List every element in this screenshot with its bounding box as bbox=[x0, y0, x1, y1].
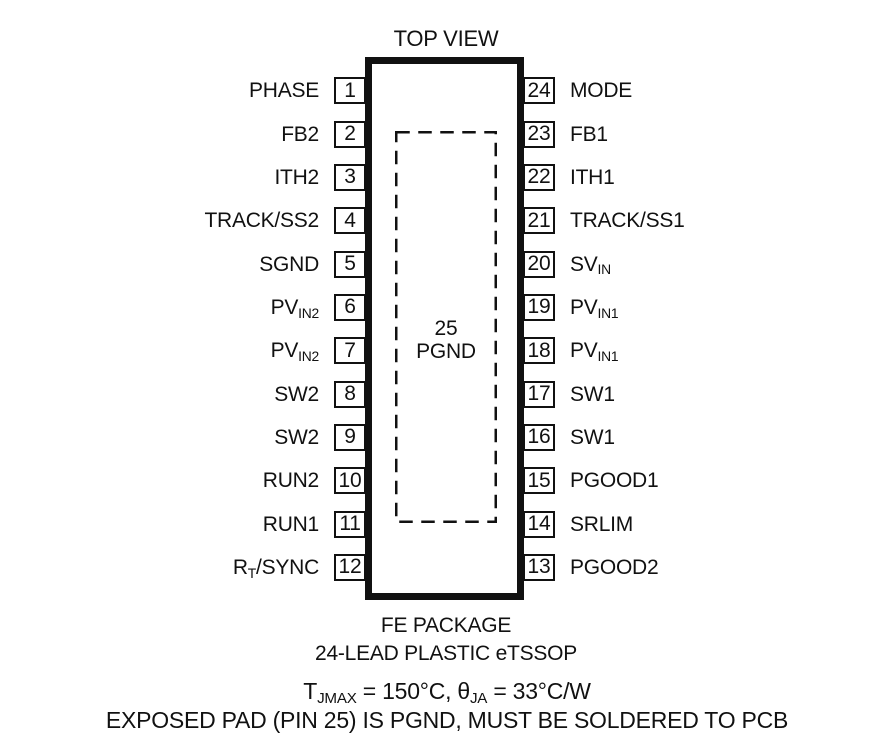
pin-label-24: MODE bbox=[570, 77, 632, 104]
pin-number-box-23: 23 bbox=[523, 121, 555, 148]
pin-row-14: 14SRLIM bbox=[523, 502, 890, 545]
pin-row-17: 17SW1 bbox=[523, 372, 890, 415]
pin-number-box-11: 11 bbox=[334, 511, 366, 538]
package-name-caption: FE PACKAGE bbox=[381, 614, 511, 638]
pin-number-box-2: 2 bbox=[334, 121, 366, 148]
pin-label-8: SW2 bbox=[274, 381, 319, 408]
pin-number-box-8: 8 bbox=[334, 381, 366, 408]
pin-label-7: PVIN2 bbox=[271, 337, 319, 364]
pin-row-24: 24MODE bbox=[523, 69, 890, 112]
pin-label-16: SW1 bbox=[570, 424, 615, 451]
pin-row-23: 23FB1 bbox=[523, 112, 890, 155]
pin-row-3: ITH23 bbox=[0, 156, 366, 199]
pin-label-4: TRACK/SS2 bbox=[204, 207, 319, 234]
pin-label-18: PVIN1 bbox=[570, 337, 618, 364]
pin-label-10: RUN2 bbox=[263, 467, 319, 494]
pin-label-11: RUN1 bbox=[263, 511, 319, 538]
pin-number-box-16: 16 bbox=[523, 424, 555, 451]
pin-number-box-17: 17 bbox=[523, 381, 555, 408]
pin-row-16: 16SW1 bbox=[523, 416, 890, 459]
pin-number-box-21: 21 bbox=[523, 207, 555, 234]
pin-number-box-10: 10 bbox=[334, 467, 366, 494]
pin-label-2: FB2 bbox=[281, 121, 319, 148]
pin-row-21: 21TRACK/SS1 bbox=[523, 199, 890, 242]
pin-row-8: SW28 bbox=[0, 372, 366, 415]
pinout-diagram: TOP VIEW 25 PGND PHASE1FB22ITH23TRACK/SS… bbox=[0, 0, 890, 755]
exposed-pad-note: EXPOSED PAD (PIN 25) IS PGND, MUST BE SO… bbox=[106, 707, 788, 734]
pin-row-22: 22ITH1 bbox=[523, 156, 890, 199]
pin-label-15: PGOOD1 bbox=[570, 467, 658, 494]
pin-row-9: SW29 bbox=[0, 416, 366, 459]
pin-row-13: 13PGOOD2 bbox=[523, 546, 890, 589]
pin-label-3: ITH2 bbox=[274, 164, 319, 191]
pin-number-box-9: 9 bbox=[334, 424, 366, 451]
pin-number-box-14: 14 bbox=[523, 511, 555, 538]
pin-number-box-15: 15 bbox=[523, 467, 555, 494]
pin-row-12: RT/SYNC12 bbox=[0, 546, 366, 589]
pin-number-box-6: 6 bbox=[334, 294, 366, 321]
left-pin-column: PHASE1FB22ITH23TRACK/SS24SGND5PVIN26PVIN… bbox=[0, 69, 366, 589]
thermal-note: TJMAX = 150°C, θJA = 33°C/W bbox=[303, 678, 590, 705]
pin-number-box-20: 20 bbox=[523, 251, 555, 278]
pin-row-7: PVIN27 bbox=[0, 329, 366, 372]
pin-row-2: FB22 bbox=[0, 112, 366, 155]
top-view-title: TOP VIEW bbox=[394, 26, 499, 52]
pin-number-box-13: 13 bbox=[523, 554, 555, 581]
pin-label-6: PVIN2 bbox=[271, 294, 319, 321]
pin-number-box-5: 5 bbox=[334, 251, 366, 278]
pin-row-10: RUN210 bbox=[0, 459, 366, 502]
pin-row-6: PVIN26 bbox=[0, 286, 366, 329]
pin-row-20: 20SVIN bbox=[523, 242, 890, 285]
pin-number-box-4: 4 bbox=[334, 207, 366, 234]
pin-number-box-7: 7 bbox=[334, 337, 366, 364]
pin-row-15: 15PGOOD1 bbox=[523, 459, 890, 502]
pin-row-4: TRACK/SS24 bbox=[0, 199, 366, 242]
pin-label-22: ITH1 bbox=[570, 164, 615, 191]
pin-label-23: FB1 bbox=[570, 121, 608, 148]
pin-number-box-3: 3 bbox=[334, 164, 366, 191]
pin-label-12: RT/SYNC bbox=[233, 554, 319, 581]
pin-row-5: SGND5 bbox=[0, 242, 366, 285]
pin-label-17: SW1 bbox=[570, 381, 615, 408]
exposed-pad-number: 25 bbox=[435, 317, 458, 340]
pin-number-box-18: 18 bbox=[523, 337, 555, 364]
pin-label-1: PHASE bbox=[249, 77, 319, 104]
package-type-caption: 24-LEAD PLASTIC eTSSOP bbox=[315, 642, 577, 666]
pin-label-14: SRLIM bbox=[570, 511, 633, 538]
exposed-pad-text: 25 PGND bbox=[395, 144, 497, 536]
pin-label-13: PGOOD2 bbox=[570, 554, 658, 581]
right-pin-column: 24MODE23FB122ITH121TRACK/SS120SVIN19PVIN… bbox=[523, 69, 890, 589]
pin-row-18: 18PVIN1 bbox=[523, 329, 890, 372]
pin-number-box-22: 22 bbox=[523, 164, 555, 191]
pin-number-box-24: 24 bbox=[523, 77, 555, 104]
exposed-pad: 25 PGND bbox=[395, 131, 497, 523]
exposed-pad-label: PGND bbox=[416, 340, 476, 363]
pin-label-5: SGND bbox=[259, 251, 319, 278]
pin-row-19: 19PVIN1 bbox=[523, 286, 890, 329]
pin-label-9: SW2 bbox=[274, 424, 319, 451]
pin-number-box-1: 1 bbox=[334, 77, 366, 104]
pin-number-box-12: 12 bbox=[334, 554, 366, 581]
pin-number-box-19: 19 bbox=[523, 294, 555, 321]
pin-label-19: PVIN1 bbox=[570, 294, 618, 321]
pin-row-1: PHASE1 bbox=[0, 69, 366, 112]
pin-label-20: SVIN bbox=[570, 251, 611, 278]
pin-row-11: RUN111 bbox=[0, 502, 366, 545]
pin-label-21: TRACK/SS1 bbox=[570, 207, 685, 234]
